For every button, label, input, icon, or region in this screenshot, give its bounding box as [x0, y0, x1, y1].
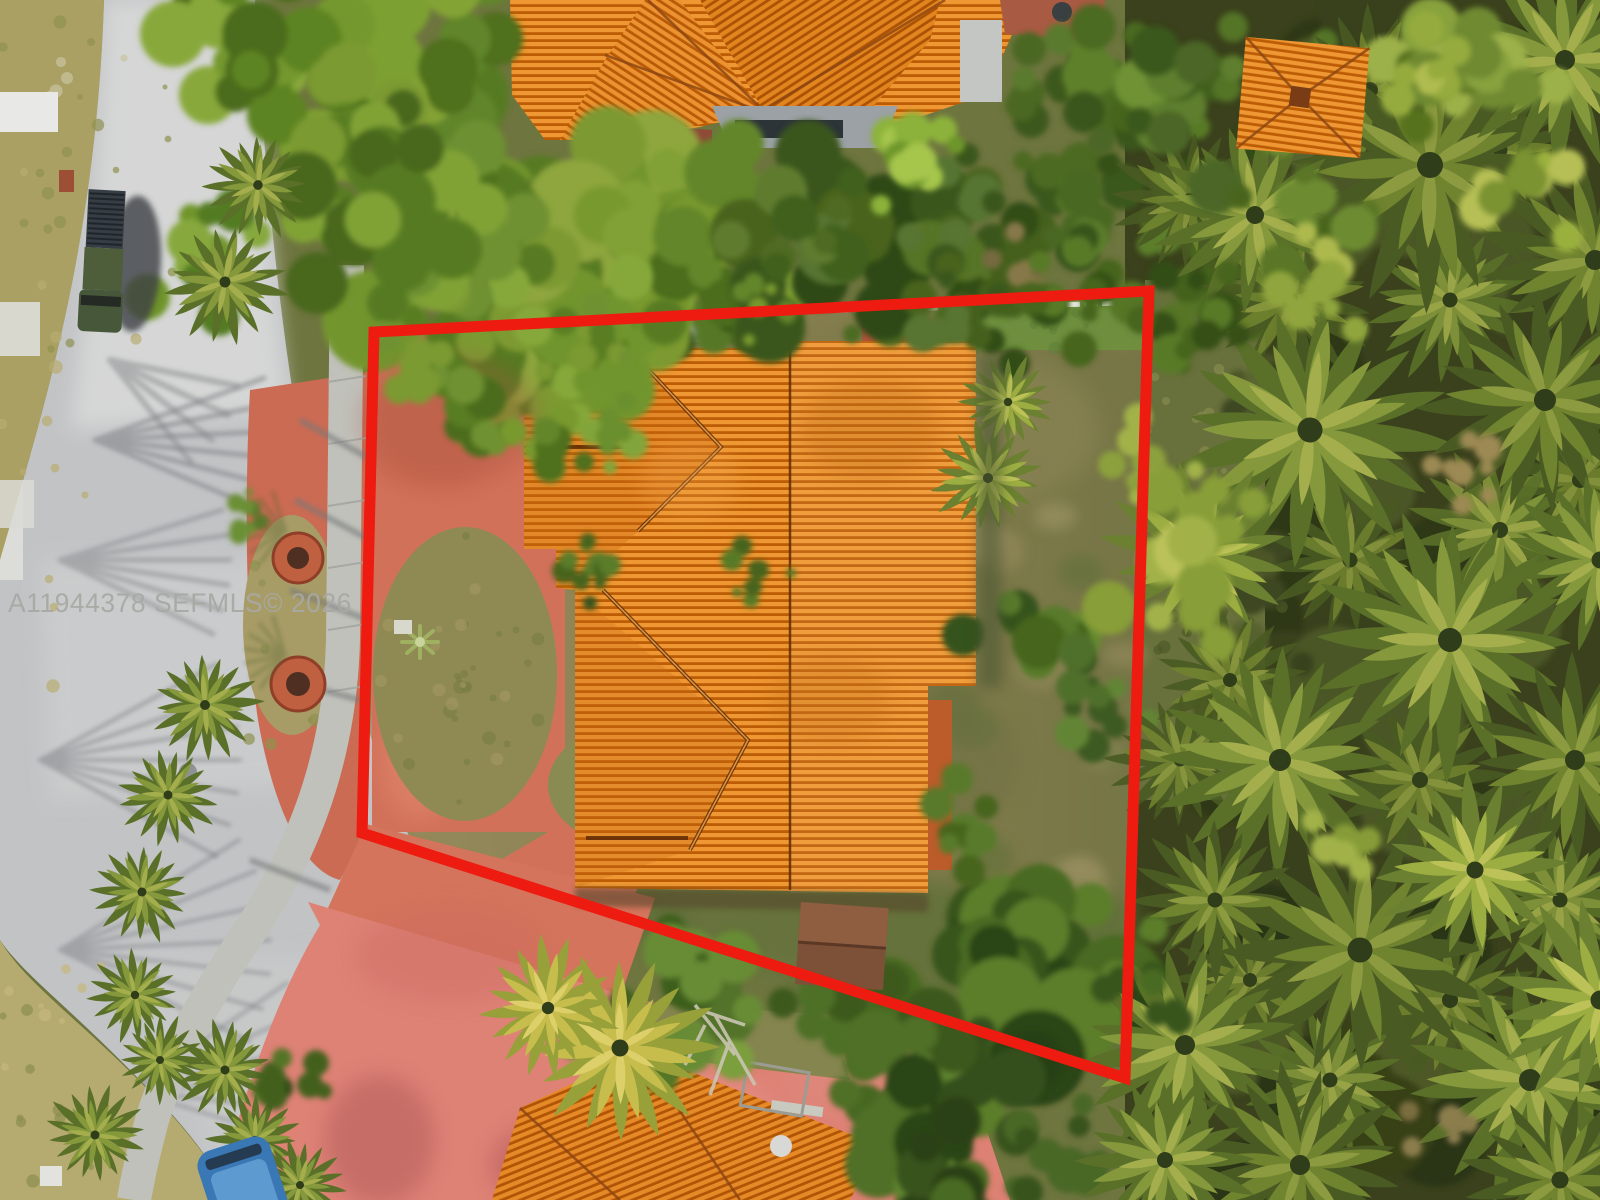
svg-text:A11944378 SEFMLS© 2026: A11944378 SEFMLS© 2026	[8, 588, 352, 618]
